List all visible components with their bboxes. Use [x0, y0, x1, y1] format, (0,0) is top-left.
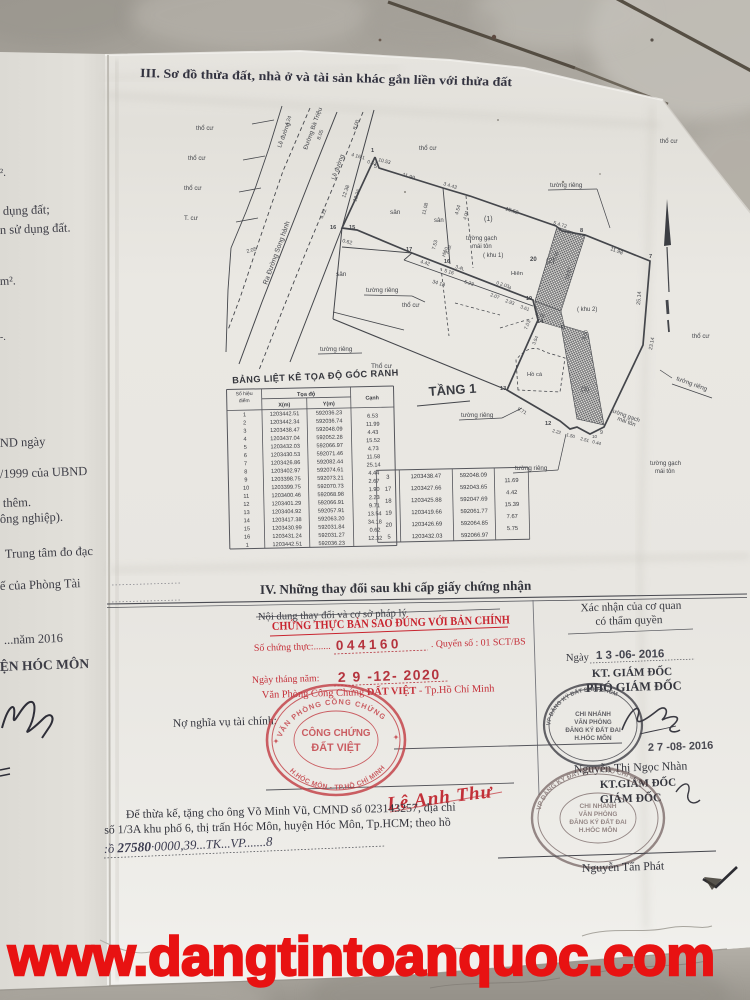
- svg-text:dụng đất;: dụng đất;: [3, 202, 50, 218]
- svg-text:592066.97: 592066.97: [461, 533, 489, 540]
- svg-text:592031.84: 592031.84: [318, 524, 345, 531]
- svg-text:044160: 044160: [336, 636, 402, 653]
- svg-text:Y(m): Y(m): [323, 401, 335, 407]
- svg-text:tường riêng: tường riêng: [461, 412, 494, 419]
- svg-text:1203438.47: 1203438.47: [411, 474, 442, 481]
- svg-text:8: 8: [244, 469, 247, 475]
- svg-text:15: 15: [244, 526, 250, 532]
- svg-text:592031.27: 592031.27: [318, 532, 345, 539]
- svg-text:thổ cư: thổ cư: [188, 155, 206, 162]
- svg-text:².: ².: [0, 167, 6, 179]
- svg-text:12: 12: [243, 502, 249, 508]
- svg-text:9.71: 9.71: [369, 503, 380, 509]
- svg-text:thổ cư: thổ cư: [402, 302, 420, 309]
- svg-text:Nguyễn Tấn Phát: Nguyễn Tấn Phát: [582, 858, 665, 875]
- svg-text:ế của Phòng Tài: ế của Phòng Tài: [0, 576, 81, 593]
- svg-text:(3): (3): [581, 386, 589, 393]
- svg-text:4.42: 4.42: [506, 490, 517, 496]
- svg-text:592043.65: 592043.65: [460, 485, 488, 492]
- svg-text:1 3 -06- 2016: 1 3 -06- 2016: [596, 648, 665, 662]
- svg-text:ỆN HÓC MÔN: ỆN HÓC MÔN: [0, 656, 90, 674]
- svg-text:1203427.66: 1203427.66: [411, 486, 442, 493]
- svg-text:thổ cư: thổ cư: [184, 185, 202, 192]
- svg-text:Số chứng thực:.......: Số chứng thực:.......: [254, 641, 331, 654]
- svg-text:tường riêng: tường riêng: [320, 346, 353, 353]
- svg-text:thêm.: thêm.: [3, 495, 32, 510]
- svg-text:9: 9: [600, 430, 603, 436]
- svg-text:592068.98: 592068.98: [317, 492, 344, 499]
- svg-text:10: 10: [243, 486, 249, 492]
- svg-text:1203432.03: 1203432.03: [270, 444, 300, 451]
- svg-text:592082.44: 592082.44: [317, 459, 344, 466]
- svg-text:sân: sân: [390, 209, 401, 216]
- svg-text:thổ cư: thổ cư: [692, 333, 710, 340]
- svg-text:mái tôn: mái tôn: [655, 469, 675, 475]
- svg-text:1203425.88: 1203425.88: [411, 498, 442, 505]
- svg-text:592066.97: 592066.97: [316, 443, 343, 450]
- svg-text:mái tôn: mái tôn: [472, 244, 492, 250]
- svg-text:Ngày: Ngày: [566, 652, 590, 664]
- svg-text:17: 17: [406, 247, 412, 253]
- svg-text:...năm 2016: ...năm 2016: [4, 631, 63, 647]
- svg-text:Ngày tháng năm:: Ngày tháng năm:: [252, 673, 320, 686]
- svg-text:Số hiệu: Số hiệu: [236, 391, 253, 397]
- svg-text:( khu 2): ( khu 2): [577, 307, 597, 313]
- svg-text:592061.77: 592061.77: [460, 509, 488, 516]
- svg-text:ĐẤT VIỆT: ĐẤT VIỆT: [311, 741, 361, 754]
- svg-text:14: 14: [244, 518, 250, 524]
- svg-text:3: 3: [386, 475, 389, 481]
- svg-text:1203437.04: 1203437.04: [270, 436, 300, 443]
- svg-text:16: 16: [330, 225, 336, 231]
- svg-text:X(m): X(m): [278, 402, 290, 408]
- svg-text:17: 17: [385, 487, 392, 493]
- svg-text:592066.91: 592066.91: [318, 500, 345, 507]
- svg-text:3: 3: [243, 429, 246, 435]
- svg-text:592070.73: 592070.73: [317, 484, 344, 491]
- svg-text:Cạnh: Cạnh: [365, 395, 379, 401]
- svg-text:11.99: 11.99: [366, 422, 380, 428]
- svg-text:ông nghiệp).: ông nghiệp).: [0, 510, 63, 526]
- svg-text:7: 7: [649, 254, 652, 260]
- svg-text:25.14: 25.14: [367, 462, 381, 468]
- svg-text:7: 7: [244, 461, 247, 467]
- svg-text:592073.21: 592073.21: [317, 475, 344, 482]
- svg-text:1203402.97: 1203402.97: [271, 468, 301, 475]
- svg-text:✦: ✦: [273, 737, 280, 746]
- svg-text:điểm: điểm: [239, 397, 250, 404]
- svg-text:592036.74: 592036.74: [316, 418, 343, 425]
- svg-text:16: 16: [444, 259, 450, 265]
- svg-text:T. cư: T. cư: [184, 215, 198, 222]
- svg-text:592071.46: 592071.46: [317, 451, 344, 458]
- svg-text:tường riêng: tường riêng: [366, 287, 399, 294]
- svg-text:20: 20: [386, 523, 393, 529]
- svg-text:CÔNG CHỨNG: CÔNG CHỨNG: [301, 727, 370, 739]
- svg-text:4.73: 4.73: [368, 446, 379, 452]
- svg-text:12.32: 12.32: [368, 536, 382, 542]
- svg-text:1: 1: [246, 543, 249, 549]
- svg-text:2.67: 2.67: [368, 479, 379, 485]
- svg-text:m².: m².: [0, 273, 16, 288]
- svg-text:1.90: 1.90: [369, 487, 380, 493]
- svg-text:592057.91: 592057.91: [318, 508, 345, 515]
- svg-text:5: 5: [244, 445, 247, 451]
- svg-text:592063.20: 592063.20: [318, 516, 345, 523]
- svg-text:CHI NHÁNH: CHI NHÁNH: [580, 801, 617, 810]
- svg-text:1203442.34: 1203442.34: [270, 419, 300, 426]
- svg-text:13: 13: [243, 510, 249, 516]
- svg-text:1203432.03: 1203432.03: [412, 534, 443, 541]
- svg-text:tường riêng: tường riêng: [550, 182, 583, 189]
- svg-text:tường gạch: tường gạch: [650, 461, 681, 467]
- svg-text:25.14: 25.14: [636, 291, 643, 305]
- svg-text:15.52: 15.52: [366, 438, 380, 444]
- svg-text:ND ngày: ND ngày: [0, 434, 46, 450]
- svg-text:592036.23: 592036.23: [318, 541, 345, 548]
- svg-text:6: 6: [244, 453, 247, 459]
- svg-text:1203442.51: 1203442.51: [272, 542, 302, 549]
- svg-text:✦: ✦: [393, 733, 400, 742]
- svg-text:1203442.51: 1203442.51: [270, 411, 300, 418]
- svg-text:sân: sân: [336, 271, 347, 278]
- svg-text:6.53: 6.53: [367, 414, 378, 420]
- svg-text:thổ cư: thổ cư: [419, 145, 437, 152]
- svg-text:sân: sân: [434, 218, 444, 224]
- svg-text:592052.28: 592052.28: [316, 435, 343, 442]
- svg-text:1203438.47: 1203438.47: [270, 427, 300, 434]
- svg-text:9: 9: [244, 477, 247, 483]
- svg-text:34.18: 34.18: [368, 519, 382, 525]
- svg-text:n sử dụng đất.: n sử dụng đất.: [0, 221, 71, 237]
- svg-text:Tọa độ: Tọa độ: [297, 392, 316, 398]
- svg-text:20: 20: [530, 257, 537, 263]
- svg-text:H.HÓC MÔN: H.HÓC MÔN: [574, 733, 612, 742]
- svg-text:1203430.53: 1203430.53: [271, 452, 301, 459]
- svg-text:4.43: 4.43: [367, 430, 378, 436]
- svg-text:19: 19: [526, 296, 532, 302]
- svg-text:1203404.92: 1203404.92: [272, 509, 302, 516]
- svg-text:VĂN PHÒNG: VĂN PHÒNG: [579, 809, 618, 818]
- svg-text:1: 1: [243, 412, 246, 418]
- svg-text:CHI NHÁNH: CHI NHÁNH: [575, 709, 611, 718]
- svg-text:2.23: 2.23: [369, 495, 380, 501]
- svg-text:2 7 -08- 2016: 2 7 -08- 2016: [648, 740, 714, 754]
- svg-text:13.54: 13.54: [368, 511, 382, 517]
- svg-text:8: 8: [580, 228, 583, 234]
- svg-text:2: 2: [243, 420, 246, 426]
- svg-text:www.dangtintoanquoc.com: www.dangtintoanquoc.com: [7, 925, 715, 987]
- svg-text:15.39: 15.39: [505, 502, 520, 508]
- svg-text:5: 5: [387, 535, 390, 541]
- svg-text:1203419.66: 1203419.66: [411, 510, 442, 517]
- svg-text:( khu 1): ( khu 1): [483, 253, 503, 259]
- svg-text:592074.61: 592074.61: [317, 467, 344, 474]
- svg-text:1: 1: [371, 148, 374, 154]
- svg-text:11.69: 11.69: [504, 478, 518, 484]
- svg-text:0.62: 0.62: [369, 528, 380, 534]
- svg-text:(1): (1): [484, 216, 493, 223]
- svg-text:Hồ cá: Hồ cá: [527, 372, 543, 378]
- svg-text:ĐĂNG KÝ ĐẤT ĐAI: ĐĂNG KÝ ĐẤT ĐAI: [565, 727, 621, 734]
- svg-text:1203431.24: 1203431.24: [272, 533, 302, 540]
- svg-text:4.44: 4.44: [368, 471, 379, 477]
- svg-text:1203401.29: 1203401.29: [272, 501, 302, 508]
- svg-text:thổ cư: thổ cư: [196, 125, 214, 132]
- svg-text:có thẩm quyền: có thẩm quyền: [595, 614, 663, 628]
- svg-text:-.: -.: [0, 332, 6, 343]
- svg-text:1203399.75: 1203399.75: [271, 484, 301, 491]
- svg-text:592048.09: 592048.09: [460, 473, 488, 480]
- svg-text:592036.23: 592036.23: [316, 410, 343, 417]
- svg-text:7.67: 7.67: [507, 514, 518, 520]
- svg-text:5.75: 5.75: [507, 526, 518, 532]
- svg-text:592048.09: 592048.09: [316, 427, 343, 434]
- svg-text:1203398.75: 1203398.75: [271, 476, 301, 483]
- svg-text:16: 16: [244, 534, 250, 540]
- svg-text:1203400.46: 1203400.46: [271, 493, 301, 500]
- svg-text:KT. GIÁM ĐỐC: KT. GIÁM ĐỐC: [592, 665, 673, 680]
- svg-text:1203430.99: 1203430.99: [272, 525, 302, 532]
- svg-text:tường gạch: tường gạch: [466, 236, 497, 242]
- svg-text:1203417.38: 1203417.38: [272, 517, 302, 524]
- svg-text:1203426.86: 1203426.86: [271, 460, 301, 467]
- svg-text:thổ cư: thổ cư: [660, 138, 678, 145]
- svg-text:11.58: 11.58: [367, 454, 381, 460]
- svg-text:13: 13: [500, 386, 506, 392]
- svg-text:VĂN PHÒNG: VĂN PHÒNG: [574, 718, 612, 726]
- svg-text:H.HÓC MÔN: H.HÓC MÔN: [579, 825, 618, 834]
- svg-text:1203426.69: 1203426.69: [412, 522, 443, 529]
- svg-text:18: 18: [385, 499, 392, 505]
- svg-text:Hiên: Hiên: [511, 271, 523, 277]
- svg-text:12: 12: [545, 421, 551, 427]
- svg-text:11: 11: [243, 494, 249, 500]
- svg-text:4: 4: [243, 437, 246, 443]
- svg-text:592047.69: 592047.69: [460, 497, 488, 504]
- svg-text:592064.85: 592064.85: [461, 521, 489, 528]
- svg-text:19: 19: [385, 511, 392, 517]
